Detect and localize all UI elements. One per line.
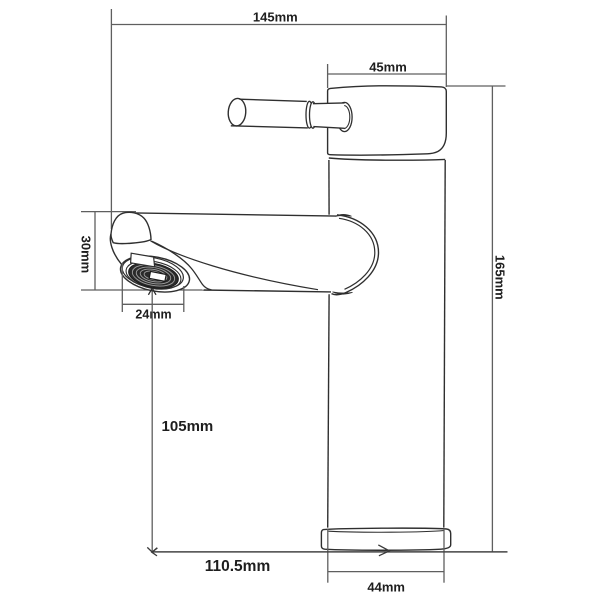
- svg-text:165mm: 165mm: [493, 255, 508, 300]
- svg-text:110.5mm: 110.5mm: [205, 558, 271, 575]
- svg-text:44mm: 44mm: [367, 579, 405, 594]
- svg-text:145mm: 145mm: [253, 10, 298, 25]
- svg-text:45mm: 45mm: [369, 59, 407, 74]
- svg-text:24mm: 24mm: [135, 307, 171, 321]
- svg-text:105mm: 105mm: [162, 418, 214, 435]
- svg-text:30mm: 30mm: [79, 236, 94, 274]
